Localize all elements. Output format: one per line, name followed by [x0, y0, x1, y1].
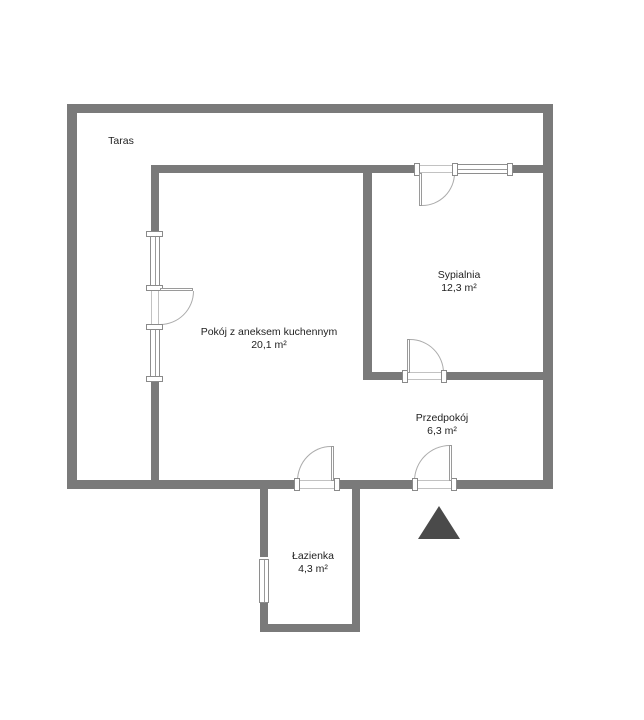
door-jamb	[441, 370, 447, 383]
room-name: Taras	[108, 135, 134, 148]
room-area: 4,3 m²	[292, 563, 334, 576]
room-area: 12,3 m²	[438, 282, 481, 295]
window-living-upper	[150, 236, 160, 286]
door-jamb	[294, 478, 300, 491]
door-jamb	[452, 163, 458, 176]
room-name: Pokój z aneksem kuchennym	[201, 326, 338, 339]
wall-living-left-lower	[151, 378, 159, 480]
door-opening-balcony-living	[151, 289, 159, 326]
door-arc-balcony-bedroom	[422, 173, 455, 206]
wall-bathroom-right	[352, 489, 360, 632]
door-leaf-bathroom	[331, 446, 334, 481]
room-label-sypialnia: Sypialnia 12,3 m²	[438, 269, 481, 295]
window-living-lower	[150, 329, 160, 377]
door-jamb	[334, 478, 340, 491]
wall-bathroom-left-upper	[260, 489, 268, 557]
entrance-triangle-icon	[418, 506, 460, 539]
window-bedroom	[456, 164, 510, 174]
door-arc-bedroom	[410, 339, 444, 373]
wall-outer-bottom-right	[455, 480, 543, 489]
room-label-lazienka: Łazienka 4,3 m²	[292, 550, 334, 576]
wall-outer-right	[543, 104, 553, 489]
door-leaf-bedroom	[407, 339, 410, 373]
window-cap	[146, 231, 163, 237]
door-jamb	[146, 324, 163, 330]
door-arc-balcony-living	[160, 291, 194, 325]
room-label-przedpokoj: Przedpokój 6,3 m²	[416, 412, 469, 438]
door-opening-bathroom	[299, 480, 335, 489]
wall-bedroom-bottom-right	[444, 372, 543, 380]
floor-plan: Taras Pokój z aneksem kuchennym 20,1 m² …	[0, 0, 644, 720]
door-leaf-entrance	[449, 445, 452, 481]
door-leaf-balcony-bedroom	[419, 173, 422, 206]
room-label-pokoj: Pokój z aneksem kuchennym 20,1 m²	[201, 326, 338, 352]
room-area: 6,3 m²	[416, 425, 469, 438]
wall-outer-bottom-mid	[337, 480, 415, 489]
room-name: Przedpokój	[416, 412, 469, 425]
room-name: Łazienka	[292, 550, 334, 563]
door-arc-entrance	[414, 445, 450, 481]
window-cap	[507, 163, 513, 176]
wall-bedroom-bottom-left	[363, 372, 405, 380]
door-opening-entrance	[417, 480, 452, 489]
wall-living-left-upper	[151, 165, 159, 233]
window-cap	[146, 376, 163, 382]
room-area: 20,1 m²	[201, 339, 338, 352]
wall-apartment-top-right	[511, 165, 543, 173]
door-jamb	[412, 478, 418, 491]
wall-bathroom-bottom	[260, 624, 360, 632]
wall-outer-top	[67, 104, 553, 113]
door-arc-bathroom	[297, 446, 331, 481]
wall-outer-left	[67, 104, 77, 489]
window-bathroom	[259, 559, 269, 603]
wall-outer-bottom-left	[67, 480, 298, 489]
room-label-taras: Taras	[108, 135, 134, 148]
door-opening-balcony-bedroom	[419, 165, 454, 173]
wall-apartment-top-left	[151, 165, 418, 173]
door-opening-bedroom	[407, 372, 442, 380]
room-name: Sypialnia	[438, 269, 481, 282]
wall-bedroom-partition	[363, 165, 372, 380]
door-leaf-balcony-living	[160, 288, 193, 291]
